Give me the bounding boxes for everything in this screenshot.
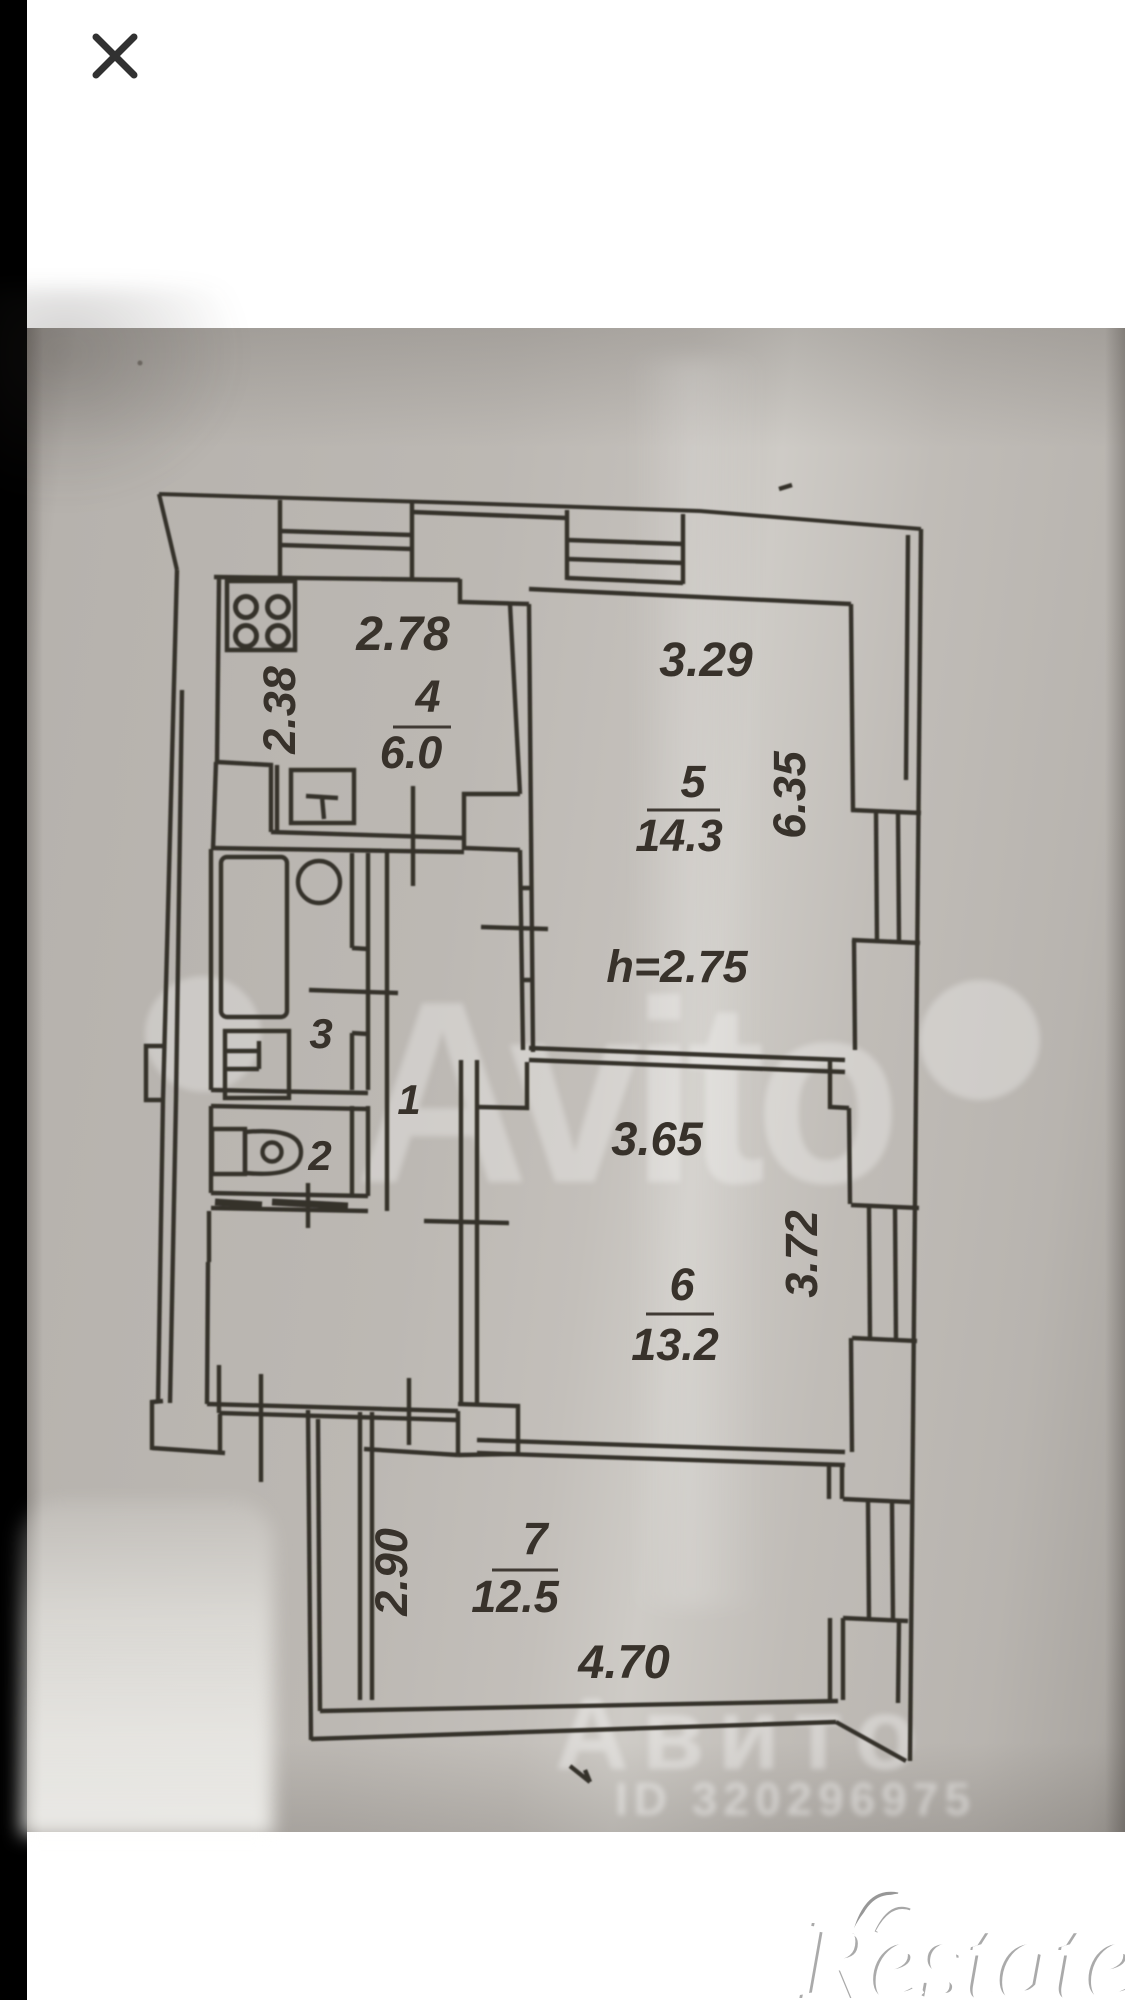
svg-text:13.2: 13.2 [631,1319,719,1370]
svg-text:4.70: 4.70 [577,1635,669,1688]
svg-text:5: 5 [680,756,706,807]
svg-text:h=2.75: h=2.75 [606,941,748,992]
svg-text:2.78: 2.78 [355,608,450,661]
svg-text:3.65: 3.65 [611,1112,703,1165]
svg-text:1: 1 [397,1076,420,1123]
svg-text:4: 4 [414,671,440,722]
svg-text:3: 3 [309,1010,332,1057]
svg-text:2: 2 [307,1132,331,1179]
svg-text:6.0: 6.0 [380,727,443,778]
svg-text:2.38: 2.38 [254,666,305,755]
svg-text:7: 7 [522,1513,549,1564]
svg-text:3.29: 3.29 [659,634,753,687]
svg-text:14.3: 14.3 [635,810,723,861]
svg-text:6.35: 6.35 [764,750,815,839]
svg-text:12.5: 12.5 [471,1571,560,1622]
svg-text:6: 6 [669,1259,695,1310]
svg-text:2.90: 2.90 [366,1528,417,1617]
svg-text:3.72: 3.72 [776,1210,827,1298]
